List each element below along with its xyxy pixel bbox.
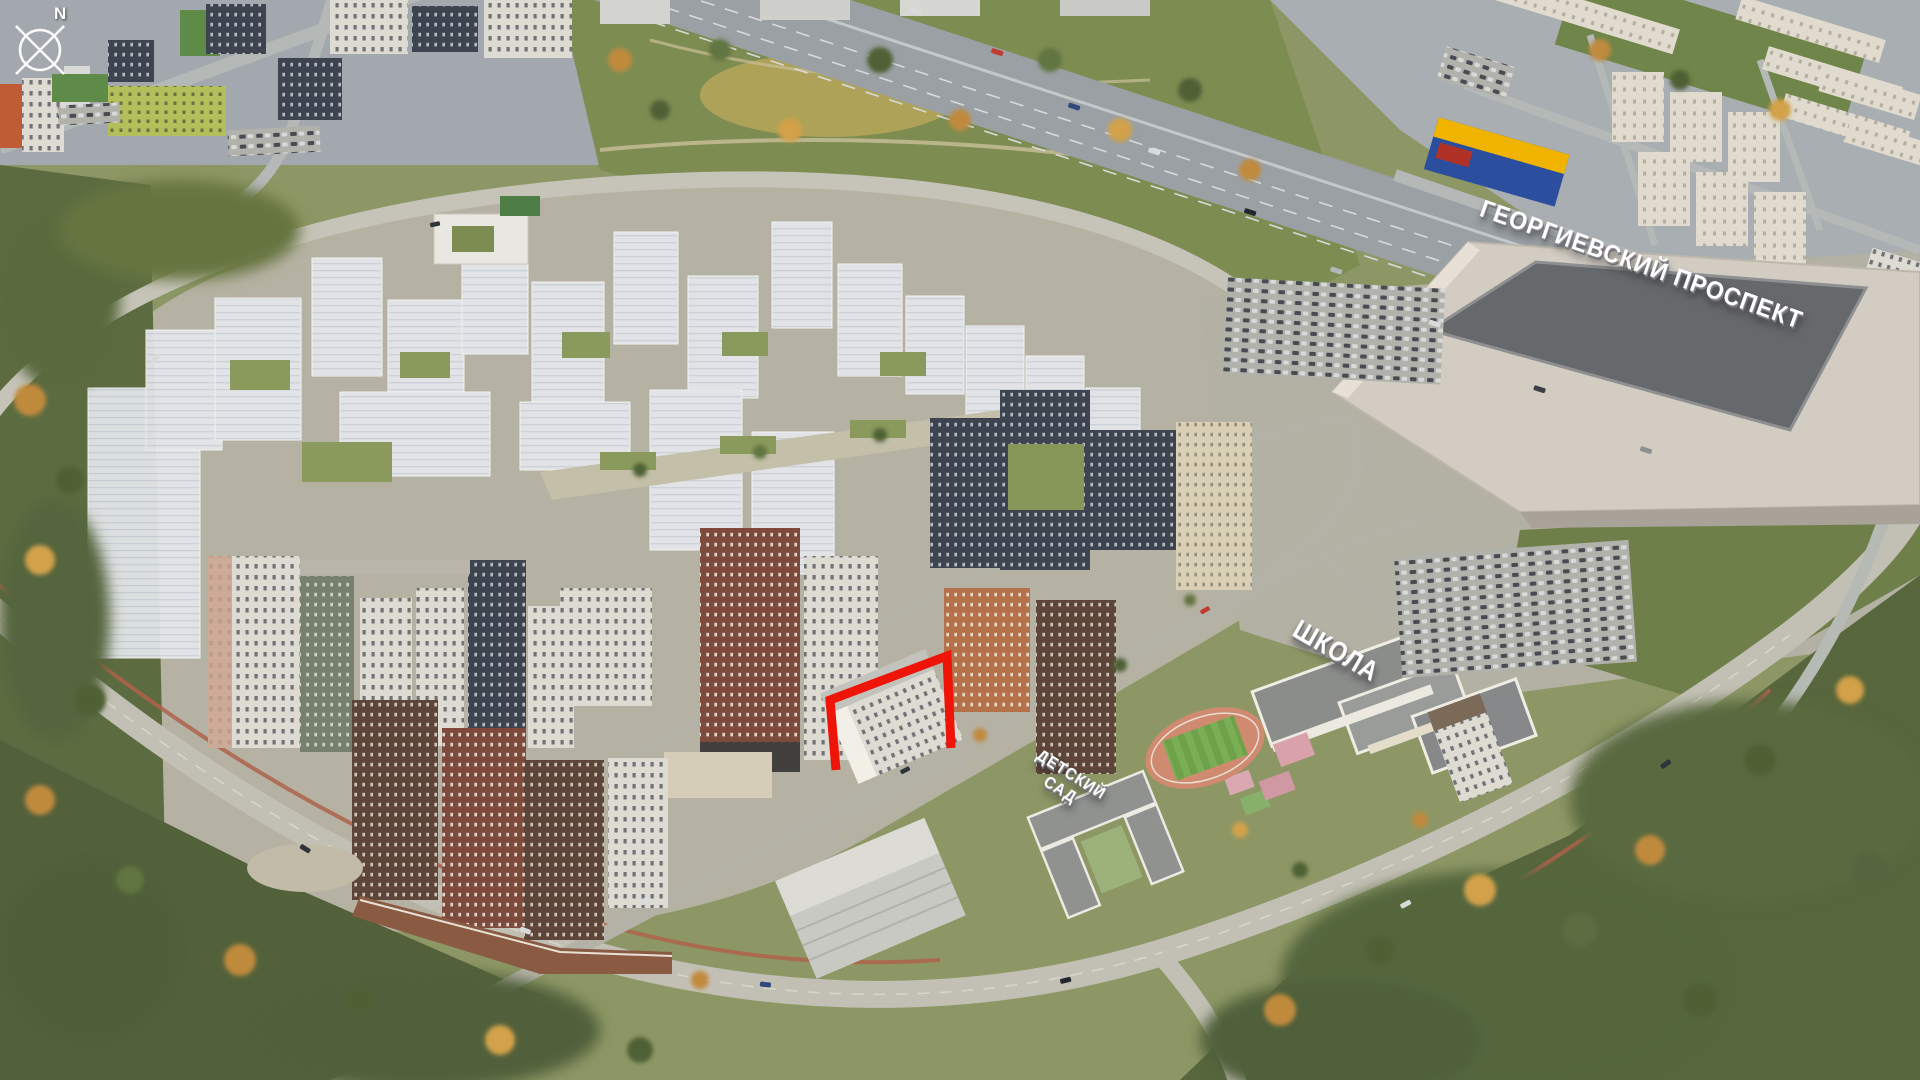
cream-tower (1176, 422, 1252, 590)
brick-tower (700, 528, 800, 772)
school-parking-lot (1394, 540, 1637, 678)
warehouse-parking-lot (1223, 277, 1446, 384)
compass-glyph (4, 0, 94, 92)
compass-icon: N (4, 0, 94, 92)
compass-north-label: N (54, 4, 66, 24)
scene-svg (0, 0, 1920, 1080)
aerial-render: N ГЕОРГИЕВСКИЙ ПРОСПЕКТ ШКОЛА ДЕТСКИЙ СА… (0, 0, 1920, 1080)
